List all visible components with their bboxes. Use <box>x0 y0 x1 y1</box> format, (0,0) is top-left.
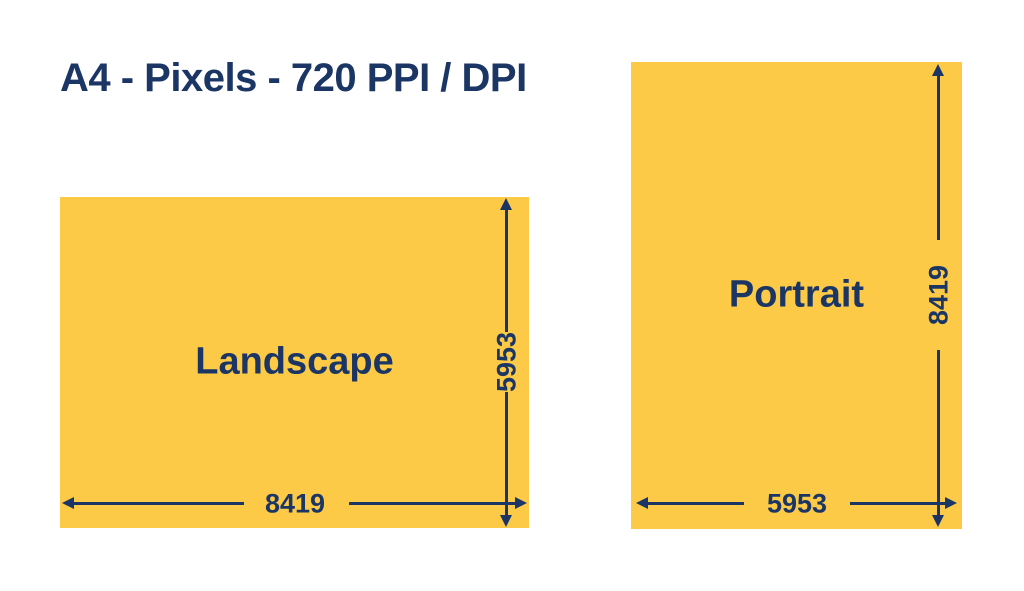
arrowhead-right-icon <box>945 497 957 509</box>
portrait-label: Portrait <box>729 273 864 316</box>
dimension-line-segment <box>505 392 508 516</box>
portrait-width-value: 5953 <box>767 489 827 520</box>
landscape-paper: Landscape <box>60 197 529 528</box>
dimension-line-segment <box>647 502 744 505</box>
landscape-width-value: 8419 <box>265 489 325 520</box>
portrait-height-value: 8419 <box>924 265 955 325</box>
dimension-line-segment <box>73 502 244 505</box>
landscape-height-value: 5953 <box>492 332 523 392</box>
arrowhead-down-icon <box>500 515 512 527</box>
diagram-canvas: A4 - Pixels - 720 PPI / DPI Landscape 59… <box>0 0 1024 591</box>
arrowhead-right-icon <box>515 497 527 509</box>
page-title: A4 - Pixels - 720 PPI / DPI <box>60 56 527 101</box>
landscape-label: Landscape <box>195 340 394 383</box>
dimension-line-segment <box>850 502 946 505</box>
dimension-line-segment <box>349 502 516 505</box>
arrowhead-down-icon <box>932 515 944 527</box>
dimension-line-segment <box>505 209 508 332</box>
dimension-line-segment <box>937 75 940 240</box>
portrait-paper: Portrait <box>631 62 962 529</box>
dimension-line-segment <box>937 350 940 516</box>
